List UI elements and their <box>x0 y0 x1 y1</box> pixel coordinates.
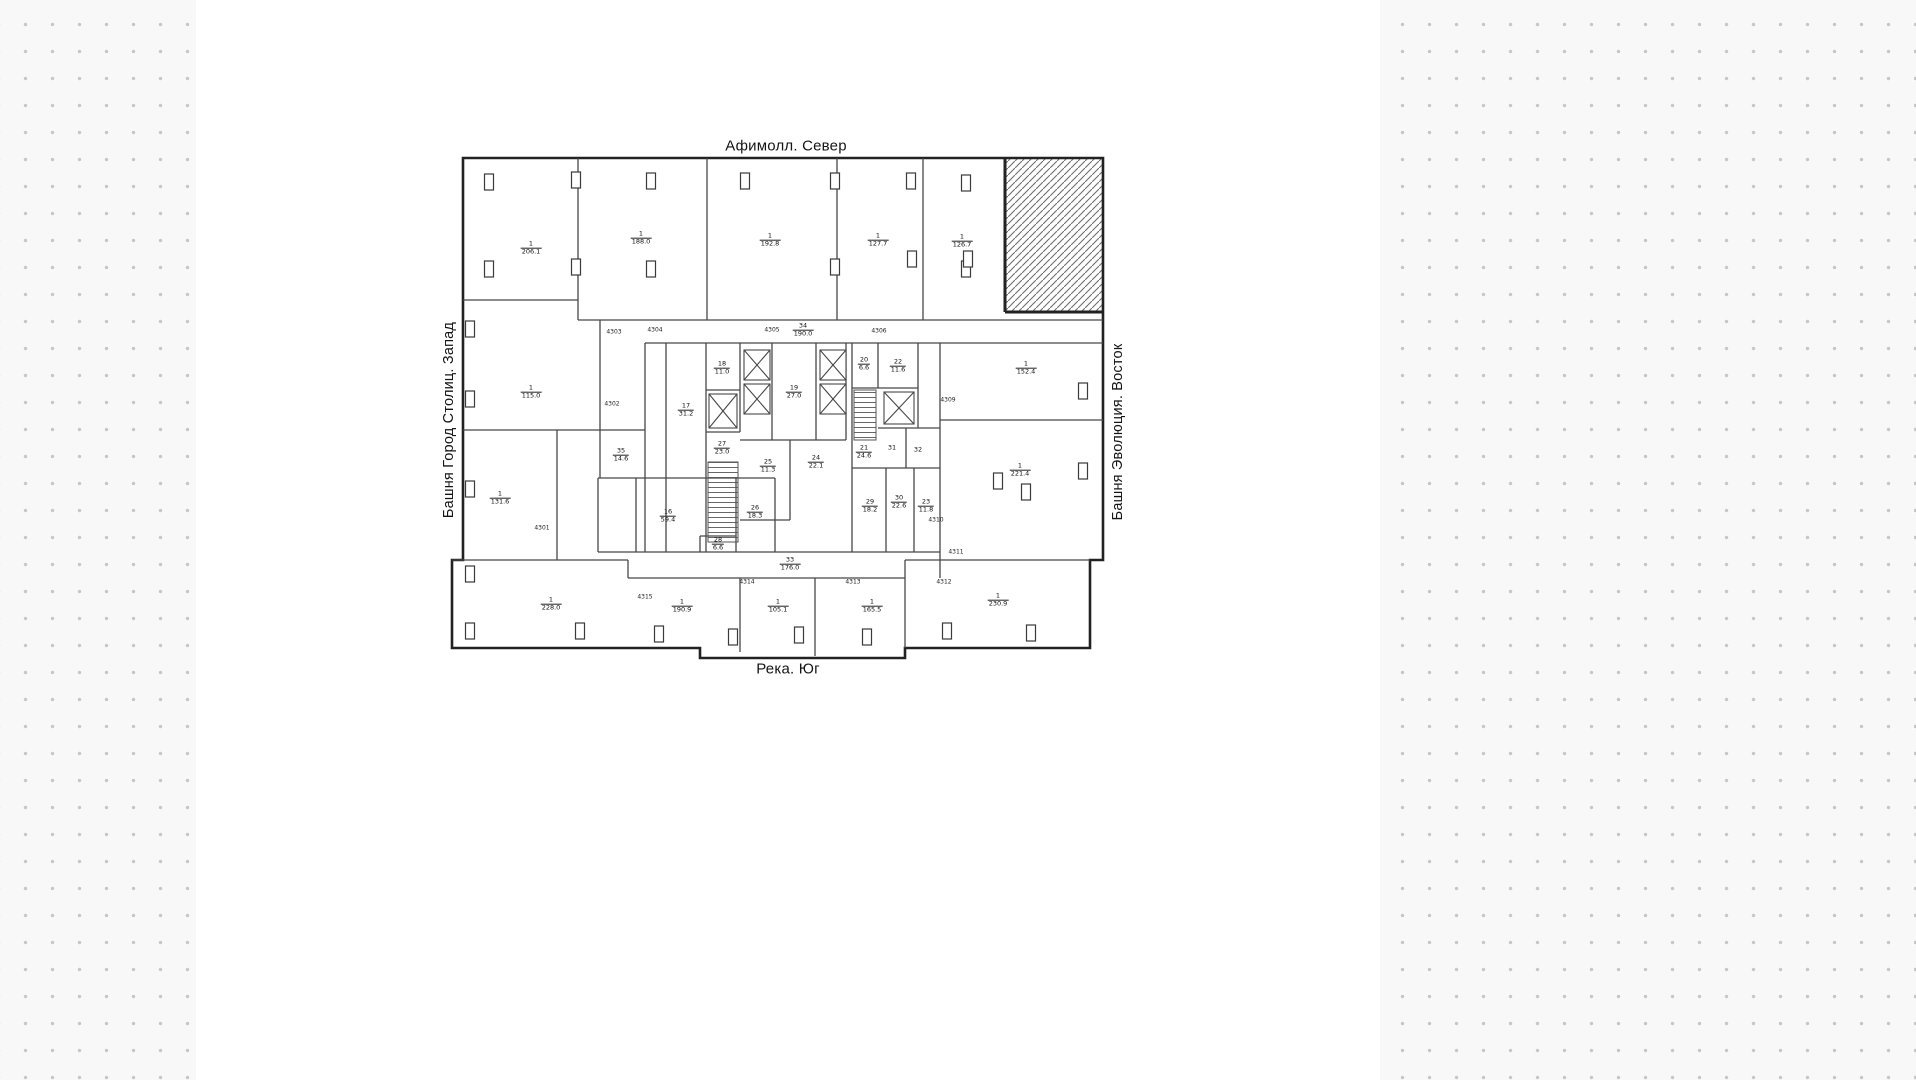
room-label: 1 230.9 <box>988 593 1009 608</box>
room-label: 32 <box>912 447 924 454</box>
elevator-shaft <box>744 384 770 414</box>
axis-mark: 4306 <box>871 328 886 335</box>
room-area: 59.4 <box>660 517 676 524</box>
room-area: 115.0 <box>521 393 542 400</box>
axis-mark: 4312 <box>936 579 951 586</box>
room-area: 11.0 <box>714 369 730 376</box>
room-label: 28 6.6 <box>712 537 724 552</box>
room-label: 29 18.2 <box>862 499 878 514</box>
room-label: 1 190.9 <box>672 599 693 614</box>
room-label: 1 228.0 <box>541 597 562 612</box>
room-label: 1 188.0 <box>631 231 652 246</box>
room-label: 1 131.6 <box>490 491 511 506</box>
room-label: 1 127.7 <box>868 233 889 248</box>
room-area: 27.0 <box>786 393 802 400</box>
axis-mark: 4313 <box>845 579 860 586</box>
room-number: 32 <box>912 447 924 454</box>
room-area: 230.9 <box>988 601 1009 608</box>
room-area: 11.3 <box>760 467 776 474</box>
room-area: 188.0 <box>631 239 652 246</box>
room-label: 1 115.0 <box>521 385 542 400</box>
room-area: 22.1 <box>808 463 824 470</box>
room-area: 131.6 <box>490 499 511 506</box>
room-area: 6.6 <box>858 365 870 372</box>
room-label: 25 11.3 <box>760 459 776 474</box>
room-label: 1 165.5 <box>862 599 883 614</box>
room-label: 17 31.2 <box>678 403 694 418</box>
direction-label-north: Афимолл. Север <box>725 138 847 155</box>
room-area: 152.4 <box>1016 369 1037 376</box>
room-label: 34 190.0 <box>793 323 814 338</box>
room-label: 23 11.8 <box>918 499 934 514</box>
room-label: 35 14.6 <box>613 448 629 463</box>
room-area: 221.4 <box>1010 471 1031 478</box>
room-area: 6.6 <box>712 545 724 552</box>
room-label: 22 11.6 <box>890 359 906 374</box>
axis-mark: 4303 <box>606 329 621 336</box>
room-area: 22.6 <box>891 503 907 510</box>
room-label: 1 126.7 <box>952 234 973 249</box>
room-label: 24 22.1 <box>808 455 824 470</box>
axis-mark: 4314 <box>739 579 754 586</box>
floor-plan-drawing <box>0 0 1916 1080</box>
axis-mark: 4309 <box>940 397 955 404</box>
room-label: 27 23.0 <box>714 441 730 456</box>
room-area: 11.8 <box>918 507 934 514</box>
room-label: 1 221.4 <box>1010 463 1031 478</box>
axis-mark: 4301 <box>534 525 549 532</box>
axis-mark: 4315 <box>637 594 652 601</box>
hatched-area <box>1005 158 1103 312</box>
elevator-shaft <box>744 350 770 380</box>
room-label: 1 206.1 <box>521 241 542 256</box>
room-area: 18.2 <box>862 507 878 514</box>
room-area: 18.3 <box>747 513 763 520</box>
room-label: 31 <box>886 445 898 452</box>
room-label: 1 192.8 <box>760 233 781 248</box>
room-area: 228.0 <box>541 605 562 612</box>
room-label: 16 59.4 <box>660 509 676 524</box>
room-area: 126.7 <box>952 242 973 249</box>
room-label: 18 11.0 <box>714 361 730 376</box>
axis-mark: 4311 <box>948 549 963 556</box>
direction-label-south: Река. Юг <box>756 661 819 678</box>
room-label: 26 18.3 <box>747 505 763 520</box>
axis-mark: 4310 <box>928 517 943 524</box>
elevator-shaft <box>820 350 846 380</box>
room-area: 127.7 <box>868 241 889 248</box>
room-area: 176.0 <box>780 565 801 572</box>
direction-label-west: Башня Город Столиц. Запад <box>441 322 457 518</box>
room-label: 1 152.4 <box>1016 361 1037 376</box>
axis-mark: 4302 <box>604 401 619 408</box>
elevator-shaft <box>709 394 737 428</box>
floor-plan: Афимолл. Север Река. Юг Башня Город Стол… <box>0 0 1916 1080</box>
elevator-shaft <box>820 384 846 414</box>
room-area: 165.5 <box>862 607 883 614</box>
screenshot-root: { "compass": { "north": "Афимолл. Север"… <box>0 0 1916 1080</box>
room-area: 105.1 <box>768 607 789 614</box>
axis-mark: 4305 <box>764 327 779 334</box>
room-area: 14.6 <box>613 456 629 463</box>
room-area: 190.0 <box>793 331 814 338</box>
room-label: 20 6.6 <box>858 357 870 372</box>
direction-label-east: Башня Эволюция. Восток <box>1110 344 1126 521</box>
axis-mark: 4304 <box>647 327 662 334</box>
room-label: 33 176.0 <box>780 557 801 572</box>
room-area: 11.6 <box>890 367 906 374</box>
room-area: 31.2 <box>678 411 694 418</box>
elevator-shaft <box>884 392 914 424</box>
room-area: 23.0 <box>714 449 730 456</box>
room-area: 206.1 <box>521 249 542 256</box>
room-label: 21 24.6 <box>856 445 872 460</box>
room-label: 19 27.0 <box>786 385 802 400</box>
room-label: 30 22.6 <box>891 495 907 510</box>
room-label: 1 105.1 <box>768 599 789 614</box>
room-area: 190.9 <box>672 607 693 614</box>
room-area: 24.6 <box>856 453 872 460</box>
room-number: 31 <box>886 445 898 452</box>
room-area: 192.8 <box>760 241 781 248</box>
